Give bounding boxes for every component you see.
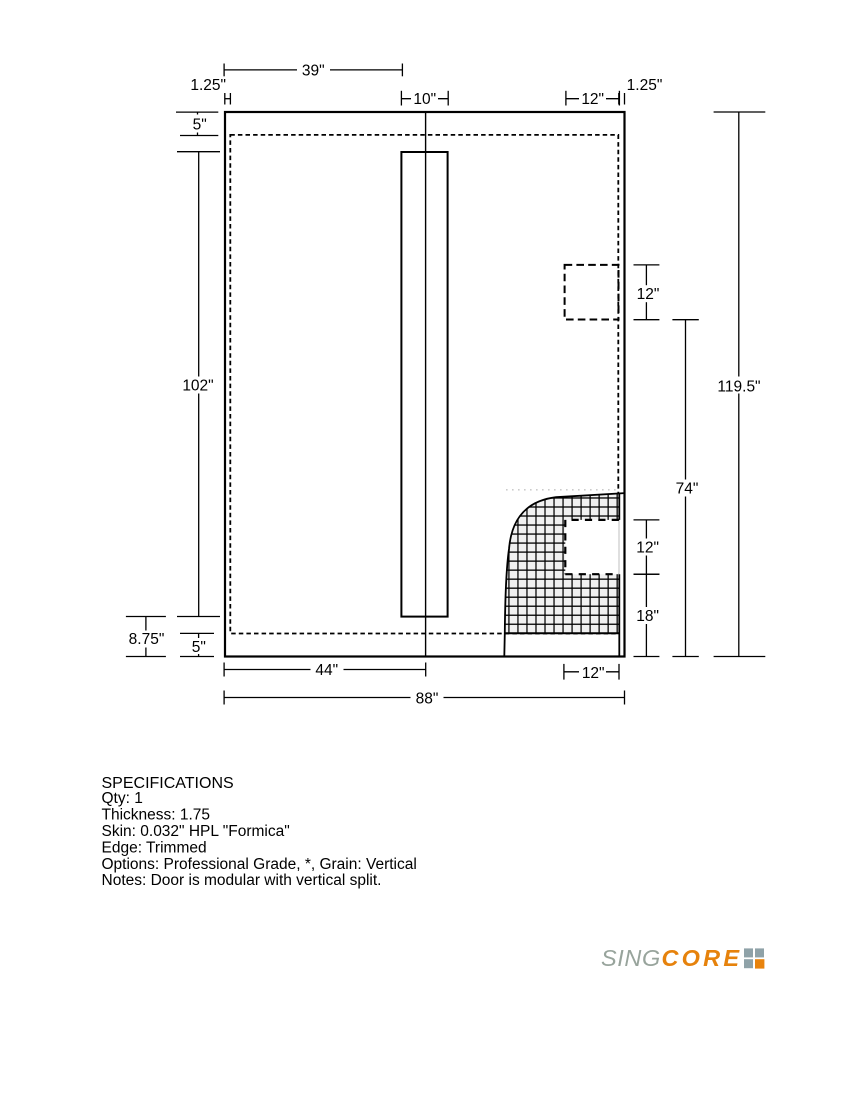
svg-text:88": 88" (416, 690, 439, 707)
svg-text:12": 12" (637, 286, 660, 303)
svg-text:CORE: CORE (662, 945, 743, 971)
svg-text:102": 102" (182, 378, 213, 395)
svg-text:18": 18" (636, 608, 659, 625)
svg-text:8.75": 8.75" (129, 631, 165, 648)
svg-text:5": 5" (192, 639, 206, 656)
svg-text:Qty: 1: Qty: 1 (102, 790, 143, 807)
svg-text:Thickness: 1.75: Thickness: 1.75 (102, 807, 211, 824)
svg-text:12": 12" (636, 540, 659, 557)
svg-text:Skin: 0.032" HPL "Formica": Skin: 0.032" HPL "Formica" (102, 823, 290, 840)
svg-text:39": 39" (302, 62, 325, 79)
svg-text:1.25": 1.25" (190, 77, 226, 94)
svg-text:Notes: Door is modular with ve: Notes: Door is modular with vertical spl… (102, 872, 382, 889)
svg-text:10": 10" (413, 91, 436, 108)
svg-text:1.25": 1.25" (627, 77, 663, 94)
svg-text:Options: Professional Grade, *: Options: Professional Grade, *, Grain: V… (102, 856, 417, 873)
svg-text:74": 74" (676, 481, 699, 498)
svg-text:Edge: Trimmed: Edge: Trimmed (102, 839, 207, 856)
svg-text:12": 12" (581, 91, 604, 108)
svg-text:SING: SING (601, 945, 661, 971)
svg-text:5": 5" (193, 117, 207, 134)
svg-text:44": 44" (315, 662, 338, 679)
svg-text:12": 12" (582, 665, 605, 682)
svg-text:119.5": 119.5" (717, 378, 760, 395)
